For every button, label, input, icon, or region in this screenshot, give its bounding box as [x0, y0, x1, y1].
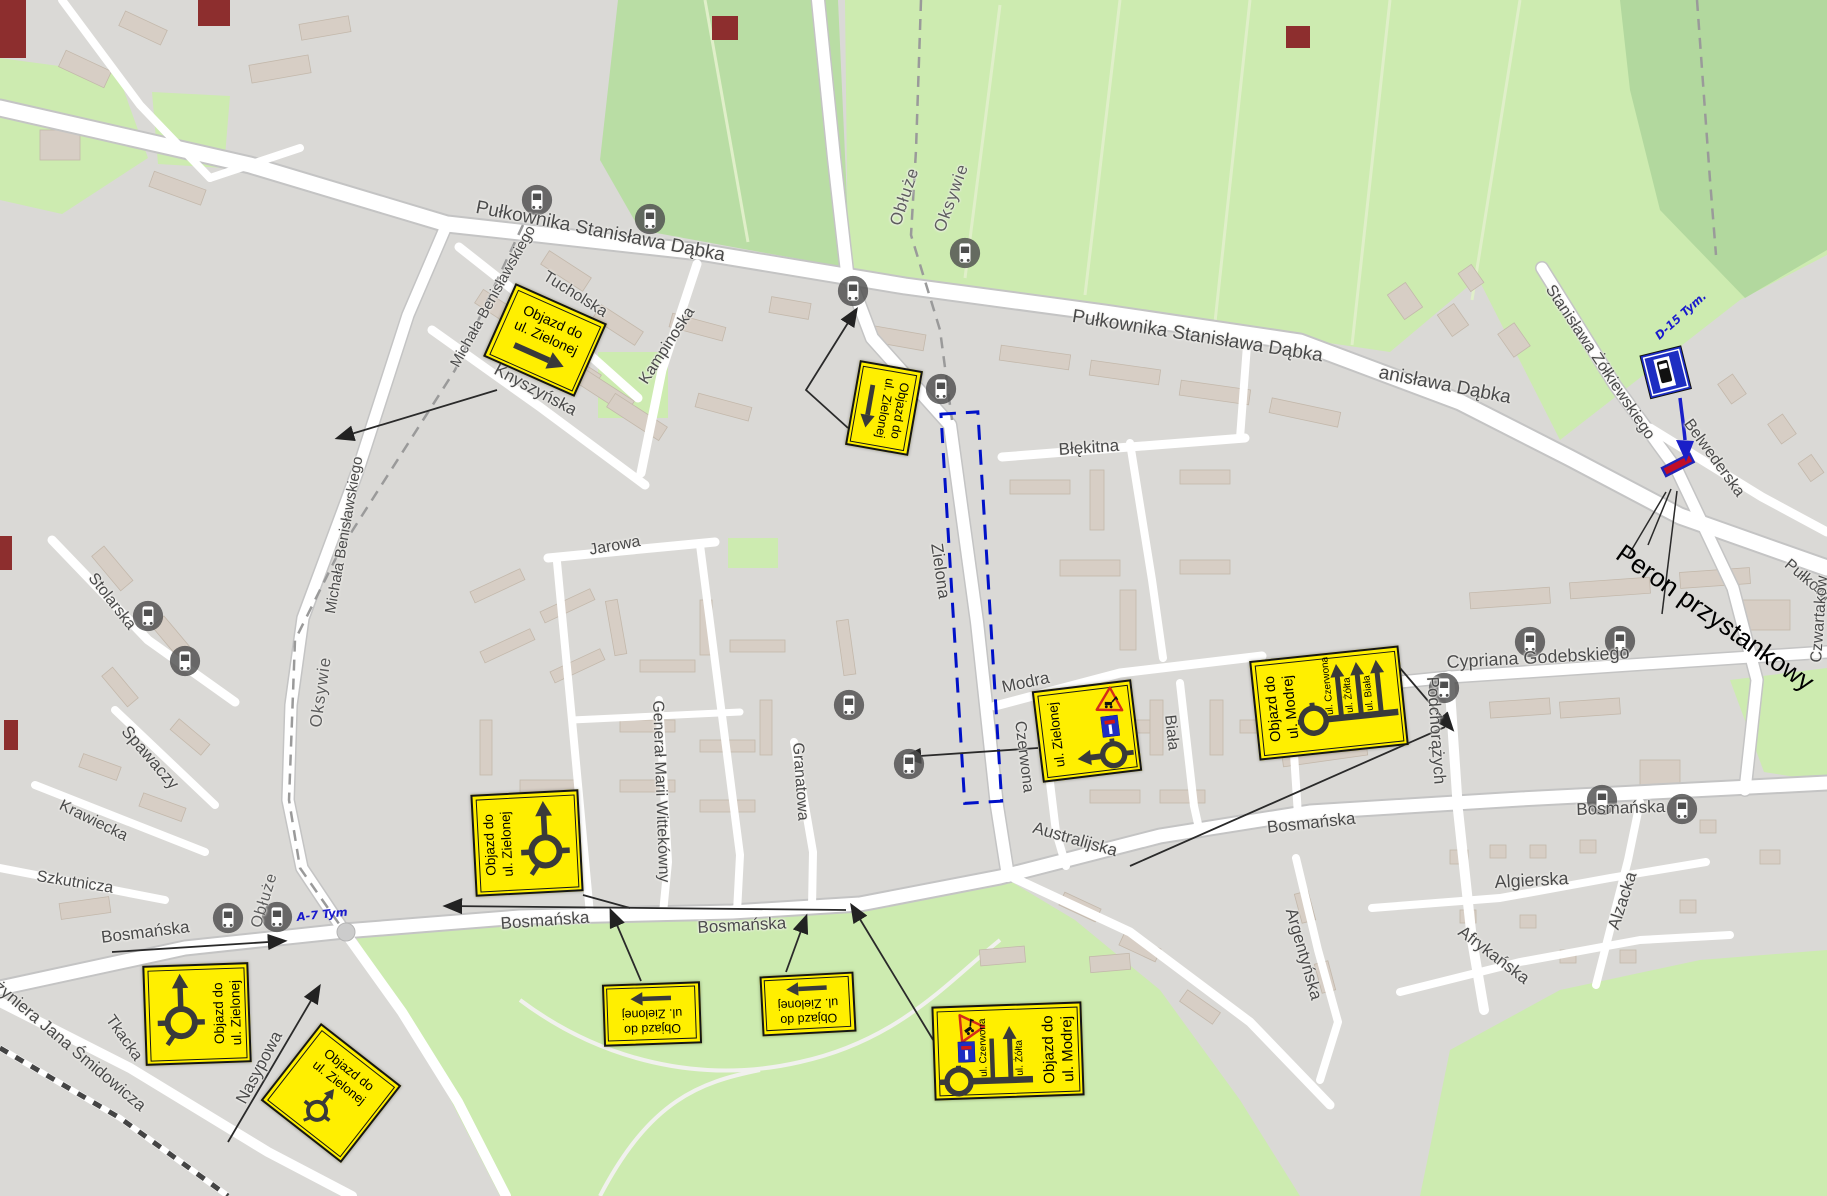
detour-diagram: [1066, 682, 1138, 777]
bus-stop-icon: [950, 238, 980, 268]
branch-street-label: ul. Żółta: [1012, 1039, 1026, 1075]
roundabout-diagram: [151, 971, 212, 1057]
bus-stop-icon: [834, 690, 864, 720]
detour-sign-i: Objazd do ul. Zielonej: [759, 972, 856, 1037]
branch-street-label: ul. Biała: [1361, 674, 1376, 711]
sign-text: Objazd do: [624, 1022, 681, 1038]
street-label: Biała: [1160, 714, 1182, 751]
street-label: Algierska: [1494, 868, 1569, 893]
right-arrow-icon: [628, 991, 674, 1008]
bus-stop-icon: [213, 903, 243, 933]
roadworks-warning-icon: [1097, 687, 1123, 710]
sign-text: Objazd do: [1039, 1015, 1060, 1084]
detour-sign-h: Objazd do ul. Zielonej: [602, 981, 702, 1046]
dead-end-sign-icon: [1100, 715, 1120, 738]
bus-stop-icon: [1667, 794, 1697, 824]
map-canvas: Pułkownika Stanisława DąbkaPułkownika St…: [0, 0, 1827, 1196]
branch-street-label: ul. Czerwona: [1319, 656, 1336, 716]
bus-stop-icon: [926, 374, 956, 404]
dead-end-sign-icon: [958, 1041, 976, 1062]
sign-text: ul. Zielonej: [227, 980, 246, 1046]
sign-text: ul. Modrej: [1058, 1014, 1079, 1083]
right-arrow-icon: [784, 980, 831, 997]
detour-sign-d: Objazd do ul. Modrej ul. Czerwona ul. Żó…: [1249, 645, 1409, 760]
sign-text: Objazd do: [210, 980, 229, 1046]
branch-street-label: ul. Czerwona: [977, 1018, 990, 1077]
street-label: Bosmańska: [1576, 797, 1665, 820]
mini-roundabout: [337, 923, 355, 941]
detour-sign-c: ul. Zielonej: [1032, 679, 1142, 783]
bus-stop-icon: [133, 601, 163, 631]
sign-text: Objazd do: [780, 1011, 838, 1028]
sign-street-name: ul. Zielonej: [1045, 701, 1070, 768]
detour-diagram: ul. Czerwona ul. Żółta: [937, 1007, 1036, 1100]
bus-stop-icon: [170, 646, 200, 676]
detour-sign-e: Objazd do ul. Zielonej: [470, 789, 583, 897]
bus-stop-icon: [838, 276, 868, 306]
detour-diagram: ul. Czerwona ul. Żółta ul. Biała: [1291, 650, 1404, 754]
street-label: Błękitna: [1058, 436, 1120, 460]
detour-sign-j: ul. Czerwona ul. Żółta Objazd do ul. Mod…: [931, 1001, 1084, 1100]
roundabout-diagram: [513, 798, 577, 887]
detour-sign-f: Objazd do ul. Zielonej: [142, 962, 251, 1066]
bus-stop-icon: [894, 749, 924, 779]
sign-text: ul. Zielonej: [622, 1006, 683, 1022]
